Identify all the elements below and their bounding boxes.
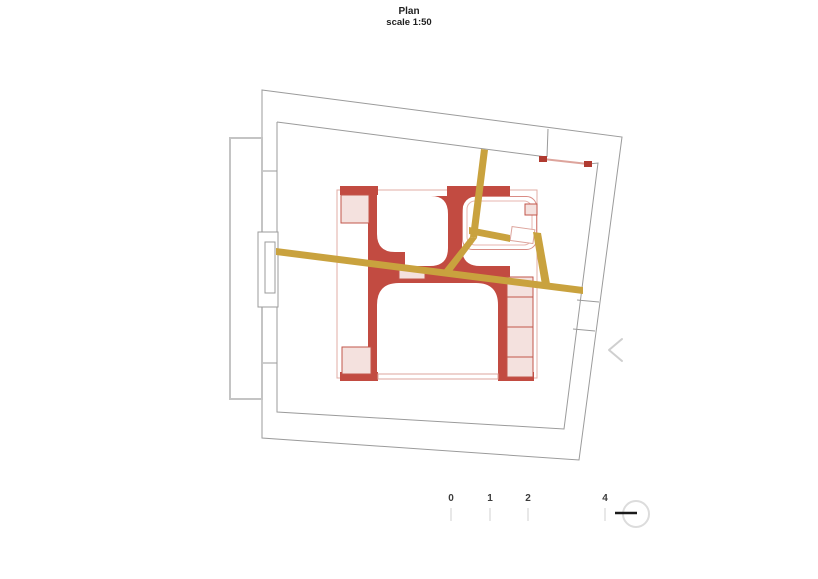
jamb-box: [525, 204, 537, 215]
north-orientation-icon: [615, 501, 649, 527]
beam-right-vertical: [533, 232, 550, 285]
stair-box-2: [507, 297, 533, 327]
entrance-door: [539, 156, 592, 167]
door-jamb: [547, 129, 548, 157]
balcony-outline: [230, 138, 262, 399]
gold-wall-door-gap: [510, 227, 535, 244]
stair-box-4: [507, 357, 533, 377]
big-room-threshold: [378, 374, 498, 379]
scale-label-0: 0: [448, 493, 454, 504]
scale-label-4: 4: [602, 493, 608, 504]
scale-label-2: 2: [525, 493, 531, 504]
scale-label-1: 1: [487, 493, 493, 504]
scale-bar-ticks: [451, 508, 605, 521]
left-wall-niche: [258, 232, 278, 307]
chevron-left-icon[interactable]: [609, 339, 622, 361]
shell-inner-top: [277, 122, 547, 157]
cabinet-bottom-left: [342, 347, 371, 374]
cabinet-top-left: [341, 195, 369, 223]
floor-plan-drawing: [0, 0, 818, 579]
stair-box-3: [507, 327, 533, 357]
page: Plan scale 1:50: [0, 0, 818, 579]
